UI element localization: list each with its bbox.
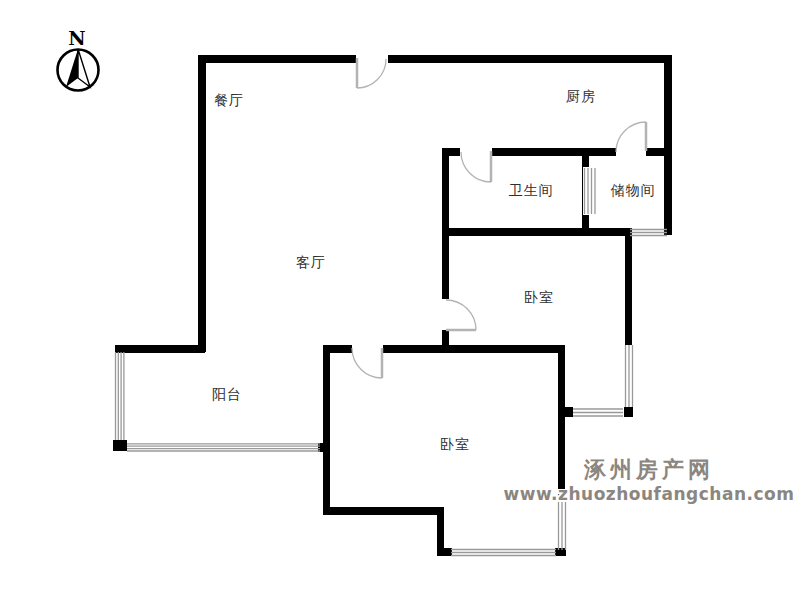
room-label-living: 客厅: [296, 254, 326, 272]
wall-segment: [198, 55, 356, 63]
wall-segment: [437, 548, 452, 556]
room-label-bathroom: 卫生间: [509, 182, 554, 200]
north-label: N: [68, 27, 85, 49]
wall-segment: [388, 55, 672, 63]
door-arc: [357, 59, 386, 88]
doors-layer: [352, 58, 646, 378]
watermark-site-url: www.zhuozhoufangchan.com: [504, 484, 795, 504]
watermark-site-name: 涿州房产网: [584, 455, 714, 485]
room-label-bedroom-bottom: 卧室: [440, 436, 470, 454]
room-label-storage: 储物间: [611, 182, 656, 200]
north-arrow-icon: [66, 49, 78, 87]
wall-segment: [442, 228, 630, 236]
floorplan-canvas: N: [0, 0, 800, 600]
door-arc: [461, 152, 491, 182]
wall-segment: [492, 148, 616, 156]
room-label-dining: 餐厅: [214, 92, 244, 110]
wall-segment: [624, 407, 633, 417]
wall-segment: [115, 345, 205, 353]
wall-segment: [625, 228, 632, 345]
room-label-bedroom-middle: 卧室: [524, 289, 554, 307]
door-arc: [352, 348, 382, 378]
wall-segment: [323, 345, 352, 353]
door-arc: [616, 122, 646, 152]
door-arc: [446, 300, 476, 330]
wall-segment: [664, 55, 672, 235]
wall-segment: [323, 345, 330, 514]
wall-segment: [558, 345, 565, 495]
wall-segment: [646, 148, 672, 156]
wall-segment: [198, 55, 206, 352]
north-arrow-icon: [78, 49, 90, 87]
wall-segment: [323, 507, 444, 515]
wall-segment: [442, 345, 565, 353]
compass: N: [58, 27, 99, 91]
wall-segment: [442, 148, 449, 299]
wall-segment: [113, 440, 127, 451]
wall-segment: [555, 548, 566, 556]
room-label-balcony: 阳台: [212, 386, 242, 404]
room-label-kitchen: 厨房: [566, 88, 596, 106]
wall-segment: [383, 345, 443, 353]
